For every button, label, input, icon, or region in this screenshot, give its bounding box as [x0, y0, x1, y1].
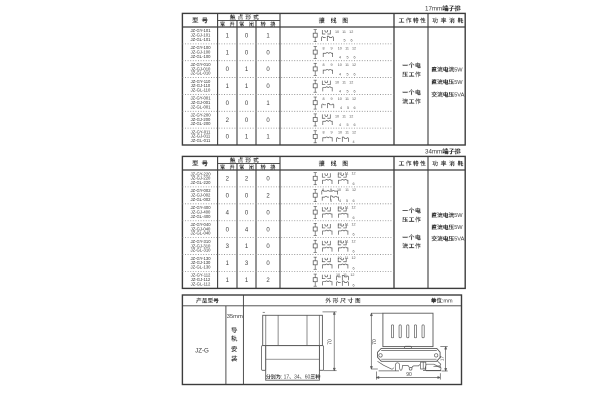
svg-text:12: 12 [352, 63, 356, 67]
svg-text:11: 11 [342, 114, 346, 118]
svg-text:1: 1 [226, 278, 230, 284]
svg-text:11: 11 [345, 222, 349, 226]
svg-text:10: 10 [338, 97, 342, 101]
svg-text:2: 2 [266, 278, 270, 284]
svg-text:5: 5 [346, 123, 348, 127]
svg-text:5: 5 [343, 39, 345, 43]
svg-text:6: 6 [352, 233, 354, 237]
svg-text:1: 1 [266, 34, 270, 40]
svg-text:0: 0 [245, 50, 249, 56]
svg-text:6: 6 [352, 199, 354, 203]
svg-text:0: 0 [266, 210, 270, 216]
svg-text:8: 8 [322, 188, 324, 192]
svg-text:0: 0 [245, 34, 249, 40]
svg-text:12: 12 [352, 46, 356, 50]
svg-text:1: 1 [245, 135, 249, 141]
svg-text:5VA: 5VA [454, 93, 464, 99]
svg-text:6: 6 [352, 250, 354, 254]
svg-text:5W: 5W [454, 80, 463, 86]
svg-text:11: 11 [345, 256, 349, 260]
svg-text:11: 11 [342, 81, 346, 85]
svg-text:10: 10 [335, 81, 339, 85]
svg-text:0: 0 [226, 101, 230, 107]
svg-text:JZ-GL-002: JZ-GL-002 [190, 197, 211, 202]
svg-text:11: 11 [345, 172, 349, 176]
svg-text:5: 5 [346, 199, 348, 203]
svg-text:12: 12 [349, 30, 353, 34]
svg-text:34: 34 [294, 374, 300, 380]
svg-text:0: 0 [266, 50, 270, 56]
svg-text:12: 12 [352, 97, 356, 101]
svg-text:1: 1 [226, 34, 230, 40]
svg-text:0: 0 [266, 118, 270, 124]
svg-text:0: 0 [266, 177, 270, 183]
svg-text:4: 4 [339, 199, 341, 203]
svg-text:4: 4 [339, 56, 341, 60]
svg-text:12: 12 [351, 239, 355, 243]
svg-text:JZ-GL-100: JZ-GL-100 [190, 54, 211, 59]
svg-text:2: 2 [226, 118, 230, 124]
svg-text:0: 0 [266, 261, 270, 267]
svg-text:JZ-GL-110: JZ-GL-110 [191, 88, 211, 93]
svg-text:17mm: 17mm [425, 6, 442, 13]
svg-text:6: 6 [350, 39, 352, 43]
svg-text:1: 1 [245, 84, 249, 90]
svg-text:1: 1 [266, 135, 270, 141]
svg-text:8: 8 [322, 63, 324, 67]
svg-text:JZ-GL-220: JZ-GL-220 [190, 180, 211, 185]
svg-text:1: 1 [245, 244, 249, 250]
svg-text:11: 11 [345, 205, 349, 209]
svg-text:10: 10 [337, 172, 341, 176]
svg-text:6: 6 [353, 89, 355, 93]
svg-text:1: 1 [226, 84, 230, 90]
svg-text:6: 6 [353, 106, 355, 110]
svg-text:4: 4 [339, 89, 341, 93]
svg-text:5VA: 5VA [454, 237, 464, 243]
svg-text:JZ-GL-130: JZ-GL-130 [190, 265, 211, 270]
svg-text:4: 4 [352, 140, 354, 144]
svg-text:60: 60 [305, 374, 311, 380]
svg-text:0: 0 [245, 194, 249, 200]
svg-text:0: 0 [266, 227, 270, 233]
svg-text:11: 11 [345, 131, 349, 135]
svg-text:9: 9 [330, 97, 332, 101]
svg-text:1: 1 [226, 261, 230, 267]
svg-text:35mm: 35mm [227, 314, 243, 320]
svg-text:11: 11 [345, 188, 349, 192]
svg-text:1: 1 [266, 101, 270, 107]
svg-text:12: 12 [351, 172, 355, 176]
svg-text:0: 0 [226, 135, 230, 141]
svg-text:12: 12 [349, 114, 353, 118]
svg-text:11: 11 [345, 239, 349, 243]
svg-text:10: 10 [335, 30, 339, 34]
svg-text:10: 10 [338, 46, 342, 50]
svg-text:5W: 5W [454, 67, 463, 73]
svg-text:4: 4 [339, 123, 341, 127]
svg-text:5W: 5W [454, 225, 463, 231]
svg-text:1: 1 [226, 50, 230, 56]
svg-text:9: 9 [330, 131, 332, 135]
svg-text:6: 6 [352, 267, 354, 271]
svg-text:0: 0 [226, 67, 230, 73]
svg-text:6: 6 [353, 123, 355, 127]
svg-text:12: 12 [351, 222, 355, 226]
svg-text:34mm: 34mm [425, 149, 442, 156]
svg-text:9: 9 [330, 46, 332, 50]
svg-text:10: 10 [337, 256, 341, 260]
svg-text:8: 8 [322, 46, 324, 50]
svg-text:4: 4 [226, 210, 230, 216]
svg-text:12: 12 [352, 131, 356, 135]
svg-text:5W: 5W [454, 213, 463, 219]
svg-text:0: 0 [245, 118, 249, 124]
svg-text:12: 12 [351, 205, 355, 209]
svg-text:8: 8 [322, 97, 324, 101]
svg-text:10: 10 [338, 131, 342, 135]
svg-text:10: 10 [338, 63, 342, 67]
svg-text:: 17: : 17 [281, 374, 290, 380]
svg-text:3: 3 [330, 199, 332, 203]
svg-text:3: 3 [245, 261, 249, 267]
svg-text:JZ-GL-310: JZ-GL-310 [190, 248, 211, 253]
svg-text:5: 5 [346, 89, 348, 93]
svg-text:70: 70 [372, 339, 378, 345]
svg-text:10: 10 [337, 222, 341, 226]
svg-text:4: 4 [245, 227, 249, 233]
svg-text:0: 0 [245, 101, 249, 107]
svg-text:10: 10 [337, 205, 341, 209]
svg-text:11: 11 [345, 97, 349, 101]
svg-text:6: 6 [353, 56, 355, 60]
svg-text:0: 0 [266, 84, 270, 90]
svg-text:6: 6 [353, 73, 355, 77]
svg-text:0: 0 [226, 227, 230, 233]
svg-text:12: 12 [351, 256, 355, 260]
svg-text:5: 5 [346, 73, 348, 77]
svg-text:2: 2 [226, 177, 230, 183]
svg-text:2: 2 [245, 177, 249, 183]
svg-text:JZ-GL-040: JZ-GL-040 [190, 231, 211, 236]
svg-text:8: 8 [322, 131, 324, 135]
svg-text:3: 3 [226, 244, 230, 250]
svg-text:9: 9 [330, 63, 332, 67]
svg-text:9: 9 [330, 188, 332, 192]
svg-text:11: 11 [342, 30, 346, 34]
svg-text:1: 1 [245, 278, 249, 284]
svg-text:5: 5 [347, 106, 349, 110]
svg-text:4: 4 [340, 106, 342, 110]
svg-text:1: 1 [245, 67, 249, 73]
svg-text:6: 6 [352, 284, 354, 288]
svg-text:6: 6 [352, 182, 354, 186]
svg-text:10: 10 [337, 239, 341, 243]
svg-text:4: 4 [339, 73, 341, 77]
svg-text:11: 11 [345, 63, 349, 67]
svg-text:12: 12 [349, 81, 353, 85]
svg-text:2: 2 [266, 194, 270, 200]
svg-text:10: 10 [337, 188, 341, 192]
svg-text:11: 11 [345, 46, 349, 50]
svg-text:0: 0 [266, 244, 270, 250]
svg-text:10: 10 [336, 273, 340, 277]
svg-text:70: 70 [328, 339, 334, 345]
svg-text:6: 6 [352, 216, 354, 220]
svg-text:90: 90 [406, 372, 412, 378]
svg-text:12: 12 [350, 273, 354, 277]
svg-text:JZ-G: JZ-G [195, 347, 209, 354]
svg-text:11: 11 [343, 273, 347, 277]
svg-text::mm: :mm [442, 298, 453, 304]
svg-text:17: 17 [440, 356, 445, 362]
svg-text:12: 12 [352, 188, 356, 192]
svg-text:JZ-GL-010: JZ-GL-010 [190, 71, 211, 76]
svg-text:JZ-GL-112: JZ-GL-112 [191, 281, 211, 286]
svg-text:JZ-GL-101: JZ-GL-101 [190, 37, 211, 42]
svg-text:JZ-GL-001: JZ-GL-001 [190, 104, 211, 109]
svg-text:JZ-GL-400: JZ-GL-400 [190, 214, 211, 219]
svg-text:5: 5 [346, 56, 348, 60]
svg-text:0: 0 [266, 67, 270, 73]
svg-text:JZ-GL-011: JZ-GL-011 [191, 138, 211, 143]
svg-text:0: 0 [226, 194, 230, 200]
svg-text:10: 10 [335, 114, 339, 118]
svg-text:0: 0 [245, 210, 249, 216]
svg-text:JZ-GL-200: JZ-GL-200 [190, 121, 211, 126]
